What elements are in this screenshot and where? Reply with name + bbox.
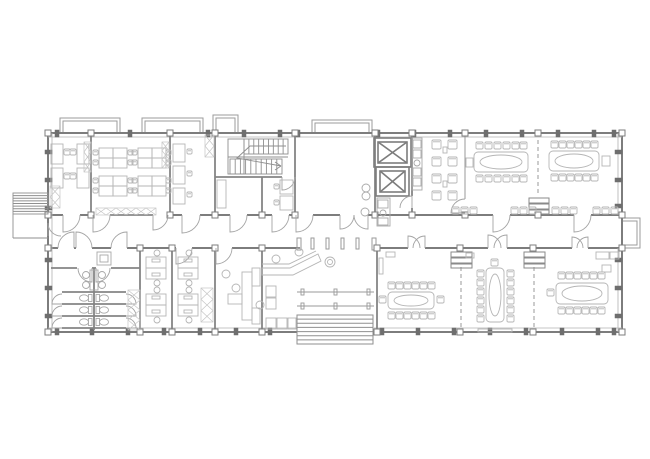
exterior-staircase [13,193,48,238]
exterior-walls [48,133,622,332]
main-staircase [228,139,288,174]
doors [48,177,591,328]
bay-windows [60,115,640,248]
entrance-railings [297,289,374,309]
conference-furniture [379,141,619,332]
movable-partitions [461,140,538,330]
floor-plan-canvas [0,0,650,459]
wall-window-lines [48,133,622,332]
interior-walls [51,133,412,332]
entrance-steps [297,315,373,344]
floor-plan-page [0,0,650,459]
office-furniture [51,140,618,329]
elevator-shafts [374,138,411,196]
